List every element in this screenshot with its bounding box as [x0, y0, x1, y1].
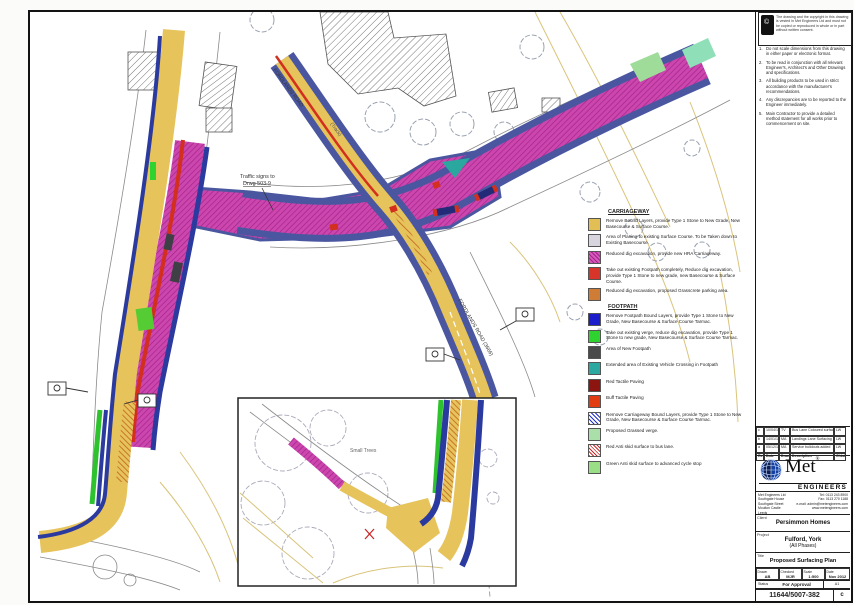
drawing-title-block: Title Proposed Surfacing Plan [756, 553, 850, 568]
drawing-number: 11644/5007-382 [756, 590, 833, 601]
original-size-value: A1 [835, 582, 839, 586]
rev-cell: MA [779, 444, 790, 453]
drawn-value: AB [758, 574, 778, 579]
copyright-note: The drawing and the copyright in this dr… [758, 12, 852, 46]
status-label: Status [756, 581, 770, 588]
company-name: Met® [785, 458, 819, 476]
legend-label: Remove Footpath Bound Layers, provide Ty… [606, 313, 746, 324]
note-text: Do not scale dimensions from this drawin… [766, 46, 847, 57]
legend-label: Area of New Footpath [606, 346, 746, 352]
legend-label: Reduced dig excavation, proposed Grasscr… [606, 288, 746, 294]
contact-line: www.metengineers.com [796, 506, 848, 510]
legend-label: Area of Planing to existing Surface Cour… [606, 234, 746, 245]
status-row: Status For Approval A1 [756, 580, 850, 589]
checked-label: Checked [781, 570, 794, 574]
legend: CARRIAGEWAY Remove Bound Layers, provide… [582, 206, 754, 477]
legend-label: Reduced dig excavation, provide new HRA … [606, 251, 746, 257]
inset-note: Small Trees [350, 448, 377, 454]
rev-cell: Landings Lane Surfacing Plan added [790, 436, 834, 445]
legend-swatch [588, 362, 601, 375]
note-text: All building products to be used in stri… [766, 78, 847, 94]
status-value: For Approval [770, 581, 823, 588]
legend-label: Buff Tactile Paving [606, 395, 746, 401]
checked-value: MJR [781, 574, 801, 579]
legend-swatch [588, 444, 601, 457]
legend-swatch [588, 395, 601, 408]
scale-label: Scale [804, 570, 812, 574]
title-block-panel: The drawing and the copyright in this dr… [755, 12, 850, 601]
rev-cell: Service buildouts added [790, 444, 834, 453]
legend-swatch [588, 461, 601, 474]
legend-label: Extended area of Existing Vehicle Crossi… [606, 362, 746, 368]
drawn-label: Drawn [758, 570, 768, 574]
date-value: Nov 2012 [827, 574, 849, 579]
copyright-icon [761, 15, 774, 35]
legend-swatch [588, 428, 601, 441]
drawing-number-row: 11644/5007-382 c [756, 589, 850, 601]
rev-cell: Bus Lane Coloured surface added [790, 427, 834, 436]
rev-cell: 10/04/13 [764, 427, 779, 436]
company-address: Met Engineers Ltd Southgate House Southg… [756, 492, 850, 515]
globe-icon [759, 458, 783, 482]
legend-swatch [588, 313, 601, 326]
meta-grid: DrawnAB CheckedMJR Scale1:500 DateNov 20… [756, 568, 850, 580]
rev-cell: LW [834, 427, 846, 436]
revision-value: c [833, 590, 850, 601]
project-phase: (All Phases) [756, 543, 850, 549]
note-number: 4. [759, 97, 764, 108]
rev-cell: 14/01/13 [764, 436, 779, 445]
legend-heading-footpath: FOOTPATH [608, 304, 754, 310]
scale-value: 1:500 [804, 574, 824, 579]
legend-swatch [588, 379, 601, 392]
legend-swatch [588, 267, 601, 280]
drawing-sheet: FORDLANDS ROAD (Track) FORDLANDS ROAD (3… [28, 10, 853, 603]
note-text: Any discrepancies are to be reported to … [766, 97, 847, 108]
legend-swatch [588, 412, 601, 425]
legend-swatch [588, 288, 601, 301]
legend-label: Green Anti skid surface to advanced cycl… [606, 461, 746, 467]
rev-cell: c [756, 427, 764, 436]
legend-label: Red Tactile Paving [606, 379, 746, 385]
legend-label: Proposed Grassed verge. [606, 428, 746, 434]
rev-cell: TV [779, 427, 790, 436]
rev-cell: MA [779, 436, 790, 445]
legend-label: Remove Bound Layers, provide Type 1 Ston… [606, 218, 746, 229]
general-notes: 1.Do not scale dimensions from this draw… [756, 45, 850, 145]
road-left-north-south [38, 30, 207, 586]
buildings [128, 12, 560, 132]
legend-label: Take out existing verge, reduce dig exca… [606, 330, 746, 341]
rev-cell: LW [834, 444, 846, 453]
project-block: Project Fulford, York (All Phases) [756, 532, 850, 553]
note-text: To be read in conjunction with all relev… [766, 60, 847, 76]
legend-heading-carriageway: CARRIAGEWAY [608, 209, 754, 215]
legend-swatch [588, 218, 601, 231]
copyright-text: The drawing and the copyright in this dr… [776, 15, 849, 43]
rev-cell: 05/12/12 [764, 444, 779, 453]
drawing-title: Proposed Surfacing Plan [756, 558, 850, 564]
rev-cell: b [756, 436, 764, 445]
date-label: Date [827, 570, 834, 574]
legend-swatch [588, 234, 601, 247]
revision-table: c10/04/13TVBus Lane Coloured surface add… [756, 426, 850, 456]
inset-detail: Small Trees [238, 398, 516, 586]
legend-label: Red Anti skid surface to bus lane. [606, 444, 746, 450]
company-tagline: ENGINEERS [759, 483, 847, 491]
note-number: 5. [759, 111, 764, 127]
legend-swatch [588, 330, 601, 343]
label-traffic-signs-1: Traffic signs to [240, 174, 275, 180]
legend-swatch [588, 346, 601, 359]
note-text: Main Contractor to provide a detailed me… [766, 111, 847, 127]
note-number: 1. [759, 46, 764, 57]
client-block: Client Persimmon Homes [756, 515, 850, 532]
note-number: 2. [759, 60, 764, 76]
note-number: 3. [759, 78, 764, 94]
legend-label: Take out existing Footpath completely, R… [606, 267, 746, 284]
rev-cell: LW [834, 436, 846, 445]
legend-swatch [588, 251, 601, 264]
client-name: Persimmon Homes [756, 520, 850, 526]
legend-label: Remove Carriageway Bound Layers, provide… [606, 412, 746, 423]
label-traffic-signs-2: Drwg 503-9 [243, 181, 271, 187]
road-fordlands-main [240, 38, 716, 220]
rev-cell: a [756, 444, 764, 453]
company-logo: Met® ENGINEERS [756, 456, 850, 492]
